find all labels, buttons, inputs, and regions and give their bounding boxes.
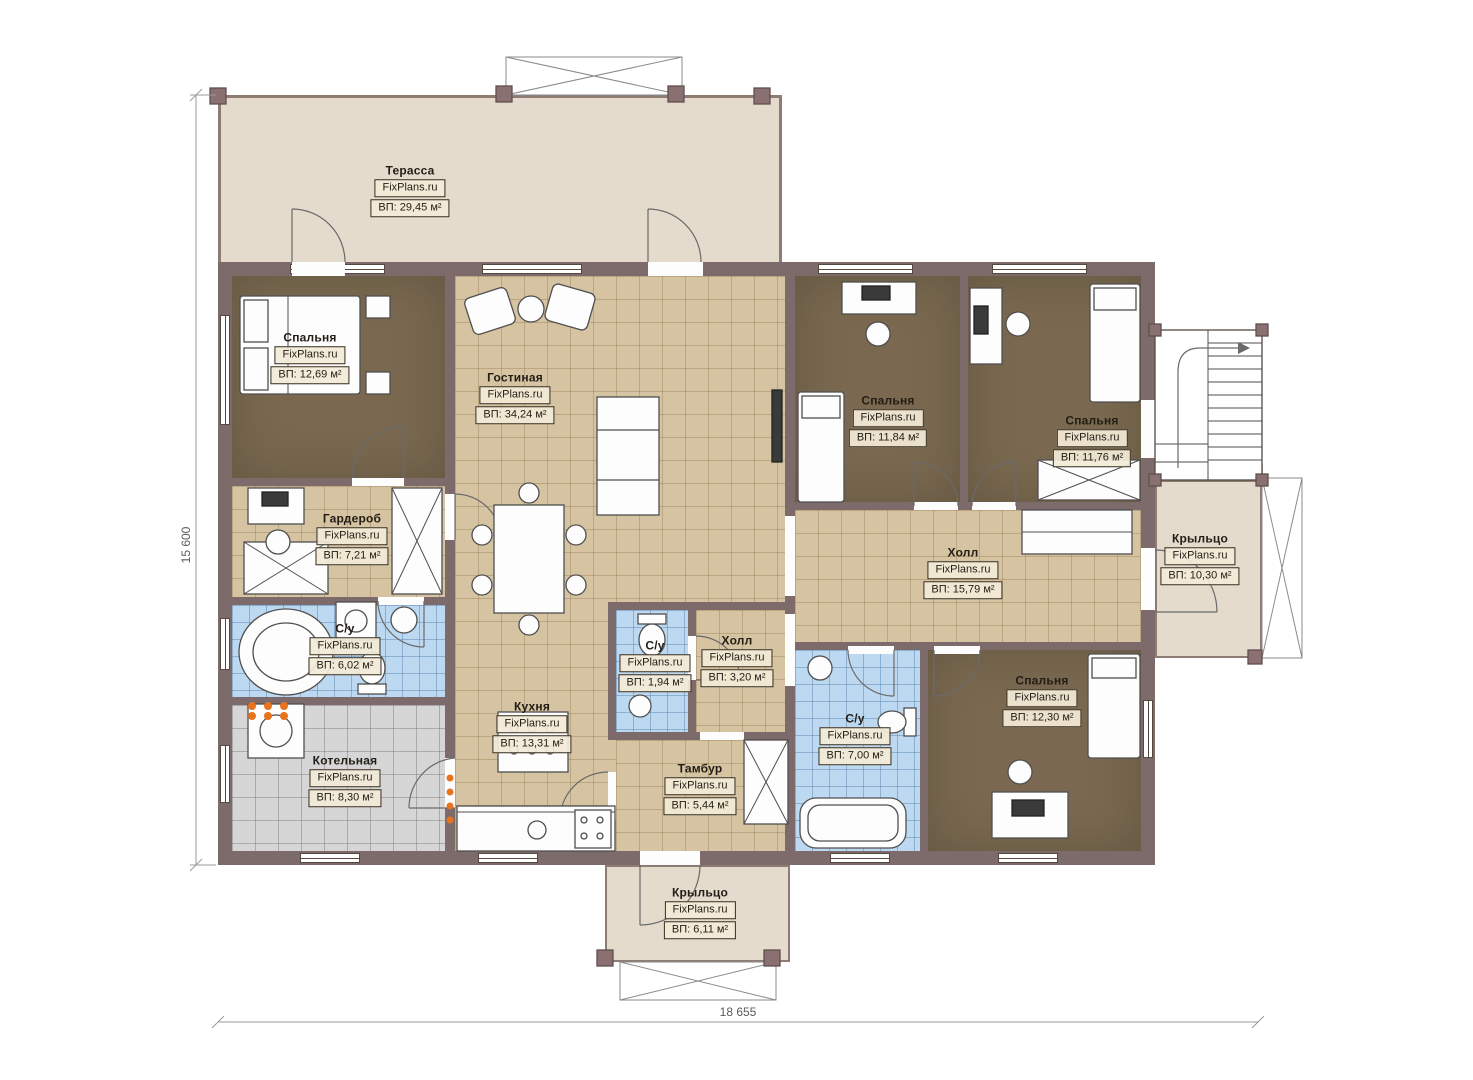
bed-icon bbox=[1090, 284, 1140, 402]
coffee-table-icon bbox=[518, 296, 544, 322]
room-name: Гардероб bbox=[323, 511, 381, 525]
kitchen-counter-icon bbox=[457, 806, 615, 851]
room-name: Крыльцо bbox=[672, 885, 728, 899]
room-area: ВП: 3,20 м² bbox=[700, 669, 773, 687]
watermark: FixPlans.ru bbox=[274, 346, 345, 364]
watermark: FixPlans.ru bbox=[1164, 547, 1235, 565]
wardrobe-icon bbox=[744, 740, 788, 824]
room-label-porch-bottom: Крыльцо FixPlans.ru ВП: 6,11 м² bbox=[664, 885, 736, 939]
watermark: FixPlans.ru bbox=[1006, 689, 1077, 707]
floor-plan: Терасса FixPlans.ru ВП: 29,45 м² Спальня… bbox=[0, 0, 1473, 1080]
wardrobe-icon bbox=[392, 488, 442, 594]
watermark: FixPlans.ru bbox=[1056, 429, 1127, 447]
pergola-bottom bbox=[620, 962, 776, 1000]
desk-icon bbox=[970, 288, 1002, 364]
room-name: С/у bbox=[335, 621, 354, 635]
sink-icon bbox=[629, 695, 651, 717]
room-label-bedroom-r1: Спальня FixPlans.ru ВП: 11,84 м² bbox=[849, 393, 927, 447]
room-name: Холл bbox=[948, 545, 979, 559]
room-name: Кухня bbox=[514, 699, 550, 713]
room-area: ВП: 6,02 м² bbox=[308, 657, 381, 675]
cabinet-icon bbox=[597, 397, 659, 515]
desk-icon bbox=[248, 488, 304, 524]
room-label-terrace: Терасса FixPlans.ru ВП: 29,45 м² bbox=[370, 163, 449, 217]
room-label-wardrobe: Гардероб FixPlans.ru ВП: 7,21 м² bbox=[315, 511, 388, 565]
room-area: ВП: 11,76 м² bbox=[1053, 449, 1131, 467]
room-area: ВП: 12,30 м² bbox=[1002, 709, 1081, 727]
sink-icon bbox=[391, 607, 417, 633]
watermark: FixPlans.ru bbox=[819, 727, 890, 745]
room-area: ВП: 15,79 м² bbox=[923, 581, 1002, 599]
dimension-height: 15 600 bbox=[179, 527, 193, 564]
room-area: ВП: 12,69 м² bbox=[270, 366, 349, 384]
room-area: ВП: 6,11 м² bbox=[664, 921, 736, 939]
room-label-tambour: Тамбур FixPlans.ru ВП: 5,44 м² bbox=[663, 761, 736, 815]
room-name: Гостиная bbox=[487, 370, 543, 384]
watermark: FixPlans.ru bbox=[701, 649, 772, 667]
pergola-top bbox=[506, 57, 682, 95]
room-name: Крыльцо bbox=[1172, 531, 1228, 545]
watermark: FixPlans.ru bbox=[496, 715, 567, 733]
room-name: С/у bbox=[845, 711, 864, 725]
bed-icon bbox=[798, 392, 844, 502]
room-label-kitchen: Кухня FixPlans.ru ВП: 13,31 м² bbox=[492, 699, 571, 753]
watermark: FixPlans.ru bbox=[309, 637, 380, 655]
room-area: ВП: 8,30 м² bbox=[308, 789, 381, 807]
pergola-right bbox=[1262, 478, 1302, 658]
room-area: ВП: 11,84 м² bbox=[849, 429, 927, 447]
room-label-bath-right: С/у FixPlans.ru ВП: 7,00 м² bbox=[818, 711, 891, 765]
room-area: ВП: 1,94 м² bbox=[618, 674, 691, 692]
room-label-boiler: Котельная FixPlans.ru ВП: 8,30 м² bbox=[308, 753, 381, 807]
chair-icon bbox=[266, 530, 290, 554]
symbols-layer bbox=[0, 0, 1473, 1080]
room-area: ВП: 7,00 м² bbox=[818, 747, 891, 765]
dimension-width: 18 655 bbox=[720, 1005, 757, 1019]
room-area: ВП: 7,21 м² bbox=[315, 547, 388, 565]
nightstand-icon bbox=[366, 372, 390, 394]
watermark: FixPlans.ru bbox=[619, 654, 690, 672]
chair-icon bbox=[866, 322, 890, 346]
room-name: Спальня bbox=[861, 393, 914, 407]
staircase bbox=[1149, 324, 1268, 486]
room-area: ВП: 29,45 м² bbox=[370, 199, 449, 217]
room-label-living: Гостиная FixPlans.ru ВП: 34,24 м² bbox=[475, 370, 554, 424]
room-name: Спальня bbox=[283, 330, 336, 344]
room-area: ВП: 13,31 м² bbox=[492, 735, 571, 753]
watermark: FixPlans.ru bbox=[316, 527, 387, 545]
bed-icon bbox=[1088, 654, 1140, 758]
watermark: FixPlans.ru bbox=[374, 179, 445, 197]
room-label-hall-small: Холл FixPlans.ru ВП: 3,20 м² bbox=[700, 633, 773, 687]
room-name: Котельная bbox=[313, 753, 378, 767]
dining-table-icon bbox=[472, 483, 586, 635]
bench-icon bbox=[1022, 510, 1132, 554]
room-label-bath-left: С/у FixPlans.ru ВП: 6,02 м² bbox=[308, 621, 381, 675]
watermark: FixPlans.ru bbox=[664, 777, 735, 795]
room-name: Спальня bbox=[1065, 413, 1118, 427]
room-area: ВП: 34,24 м² bbox=[475, 406, 554, 424]
chair-icon bbox=[1006, 312, 1030, 336]
room-label-bedroom-tl: Спальня FixPlans.ru ВП: 12,69 м² bbox=[270, 330, 349, 384]
room-label-bath-small: С/у FixPlans.ru ВП: 1,94 м² bbox=[618, 638, 691, 692]
armchair-icon bbox=[544, 283, 597, 332]
room-label-hall-big: Холл FixPlans.ru ВП: 15,79 м² bbox=[923, 545, 1002, 599]
chair-icon bbox=[1008, 760, 1032, 784]
bathtub-icon bbox=[800, 798, 906, 848]
room-area: ВП: 10,30 м² bbox=[1160, 567, 1239, 585]
desk-icon bbox=[992, 792, 1068, 838]
desk-icon bbox=[842, 282, 916, 314]
watermark: FixPlans.ru bbox=[927, 561, 998, 579]
watermark: FixPlans.ru bbox=[852, 409, 923, 427]
room-name: Спальня bbox=[1015, 673, 1068, 687]
room-label-bedroom-r2: Спальня FixPlans.ru ВП: 11,76 м² bbox=[1053, 413, 1131, 467]
room-label-porch-right: Крыльцо FixPlans.ru ВП: 10,30 м² bbox=[1160, 531, 1239, 585]
room-name: Терасса bbox=[386, 163, 435, 177]
sink-icon bbox=[808, 656, 832, 680]
boiler-icon bbox=[248, 704, 304, 758]
watermark: FixPlans.ru bbox=[309, 769, 380, 787]
tv-icon bbox=[772, 390, 782, 462]
watermark: FixPlans.ru bbox=[664, 901, 735, 919]
room-name: Тамбур bbox=[678, 761, 723, 775]
room-name: С/у bbox=[645, 638, 664, 652]
watermark: FixPlans.ru bbox=[479, 386, 550, 404]
room-label-bedroom-r3: Спальня FixPlans.ru ВП: 12,30 м² bbox=[1002, 673, 1081, 727]
radiator-icon bbox=[447, 775, 454, 824]
room-name: Холл bbox=[722, 633, 753, 647]
nightstand-icon bbox=[366, 296, 390, 318]
armchair-icon bbox=[463, 286, 517, 336]
room-area: ВП: 5,44 м² bbox=[663, 797, 736, 815]
